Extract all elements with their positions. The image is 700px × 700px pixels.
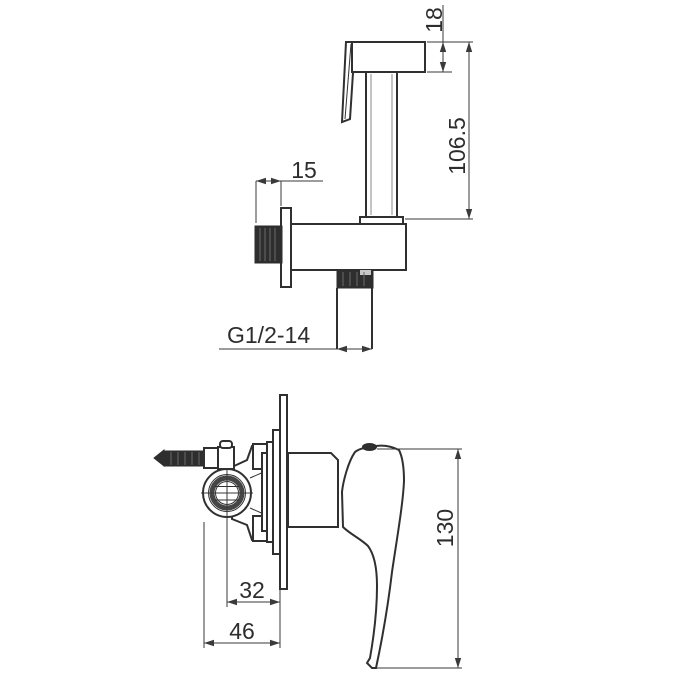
sprayer-head-height-label: 18 [421, 7, 447, 33]
nipple-connector [218, 447, 234, 469]
lever-handle [342, 446, 404, 668]
thread-spec-label: G1/2-14 [227, 322, 310, 348]
wall-inlet-thread [255, 226, 282, 263]
nipple-thread [164, 451, 204, 466]
wall-bracket-body [291, 224, 406, 270]
handle-index-button [362, 443, 377, 451]
dimension-18: 18 [421, 5, 473, 72]
sprayer-overall-height-label: 106.5 [444, 117, 470, 175]
nipple-nut [204, 448, 218, 468]
outlet-thread-highlight [360, 270, 371, 275]
body-to-plate-label: 46 [229, 618, 255, 644]
mixer-valve-side-view: 130 32 46 [154, 395, 462, 668]
plate-layer [273, 430, 280, 554]
nipple-connector-cap [220, 441, 232, 448]
nipple-tip [154, 450, 164, 466]
outlet-cylinder [337, 288, 372, 349]
thread-spec-callout: G1/2-14 [219, 322, 372, 352]
wall-offset-label: 15 [291, 157, 317, 183]
sprayer-side-view: 18 106.5 15 G1/2-14 [219, 5, 473, 352]
sprayer-head [352, 42, 425, 72]
wall-plate [280, 395, 287, 589]
valve-overall-height-label: 130 [432, 509, 458, 547]
trim-sleeve [288, 453, 338, 527]
center-to-plate-label: 32 [239, 577, 265, 603]
inlet-nipple [154, 441, 234, 469]
wand-base-collar [360, 217, 403, 224]
technical-drawing-canvas: 18 106.5 15 G1/2-14 [0, 0, 700, 700]
wall-plate-stack [262, 395, 287, 589]
